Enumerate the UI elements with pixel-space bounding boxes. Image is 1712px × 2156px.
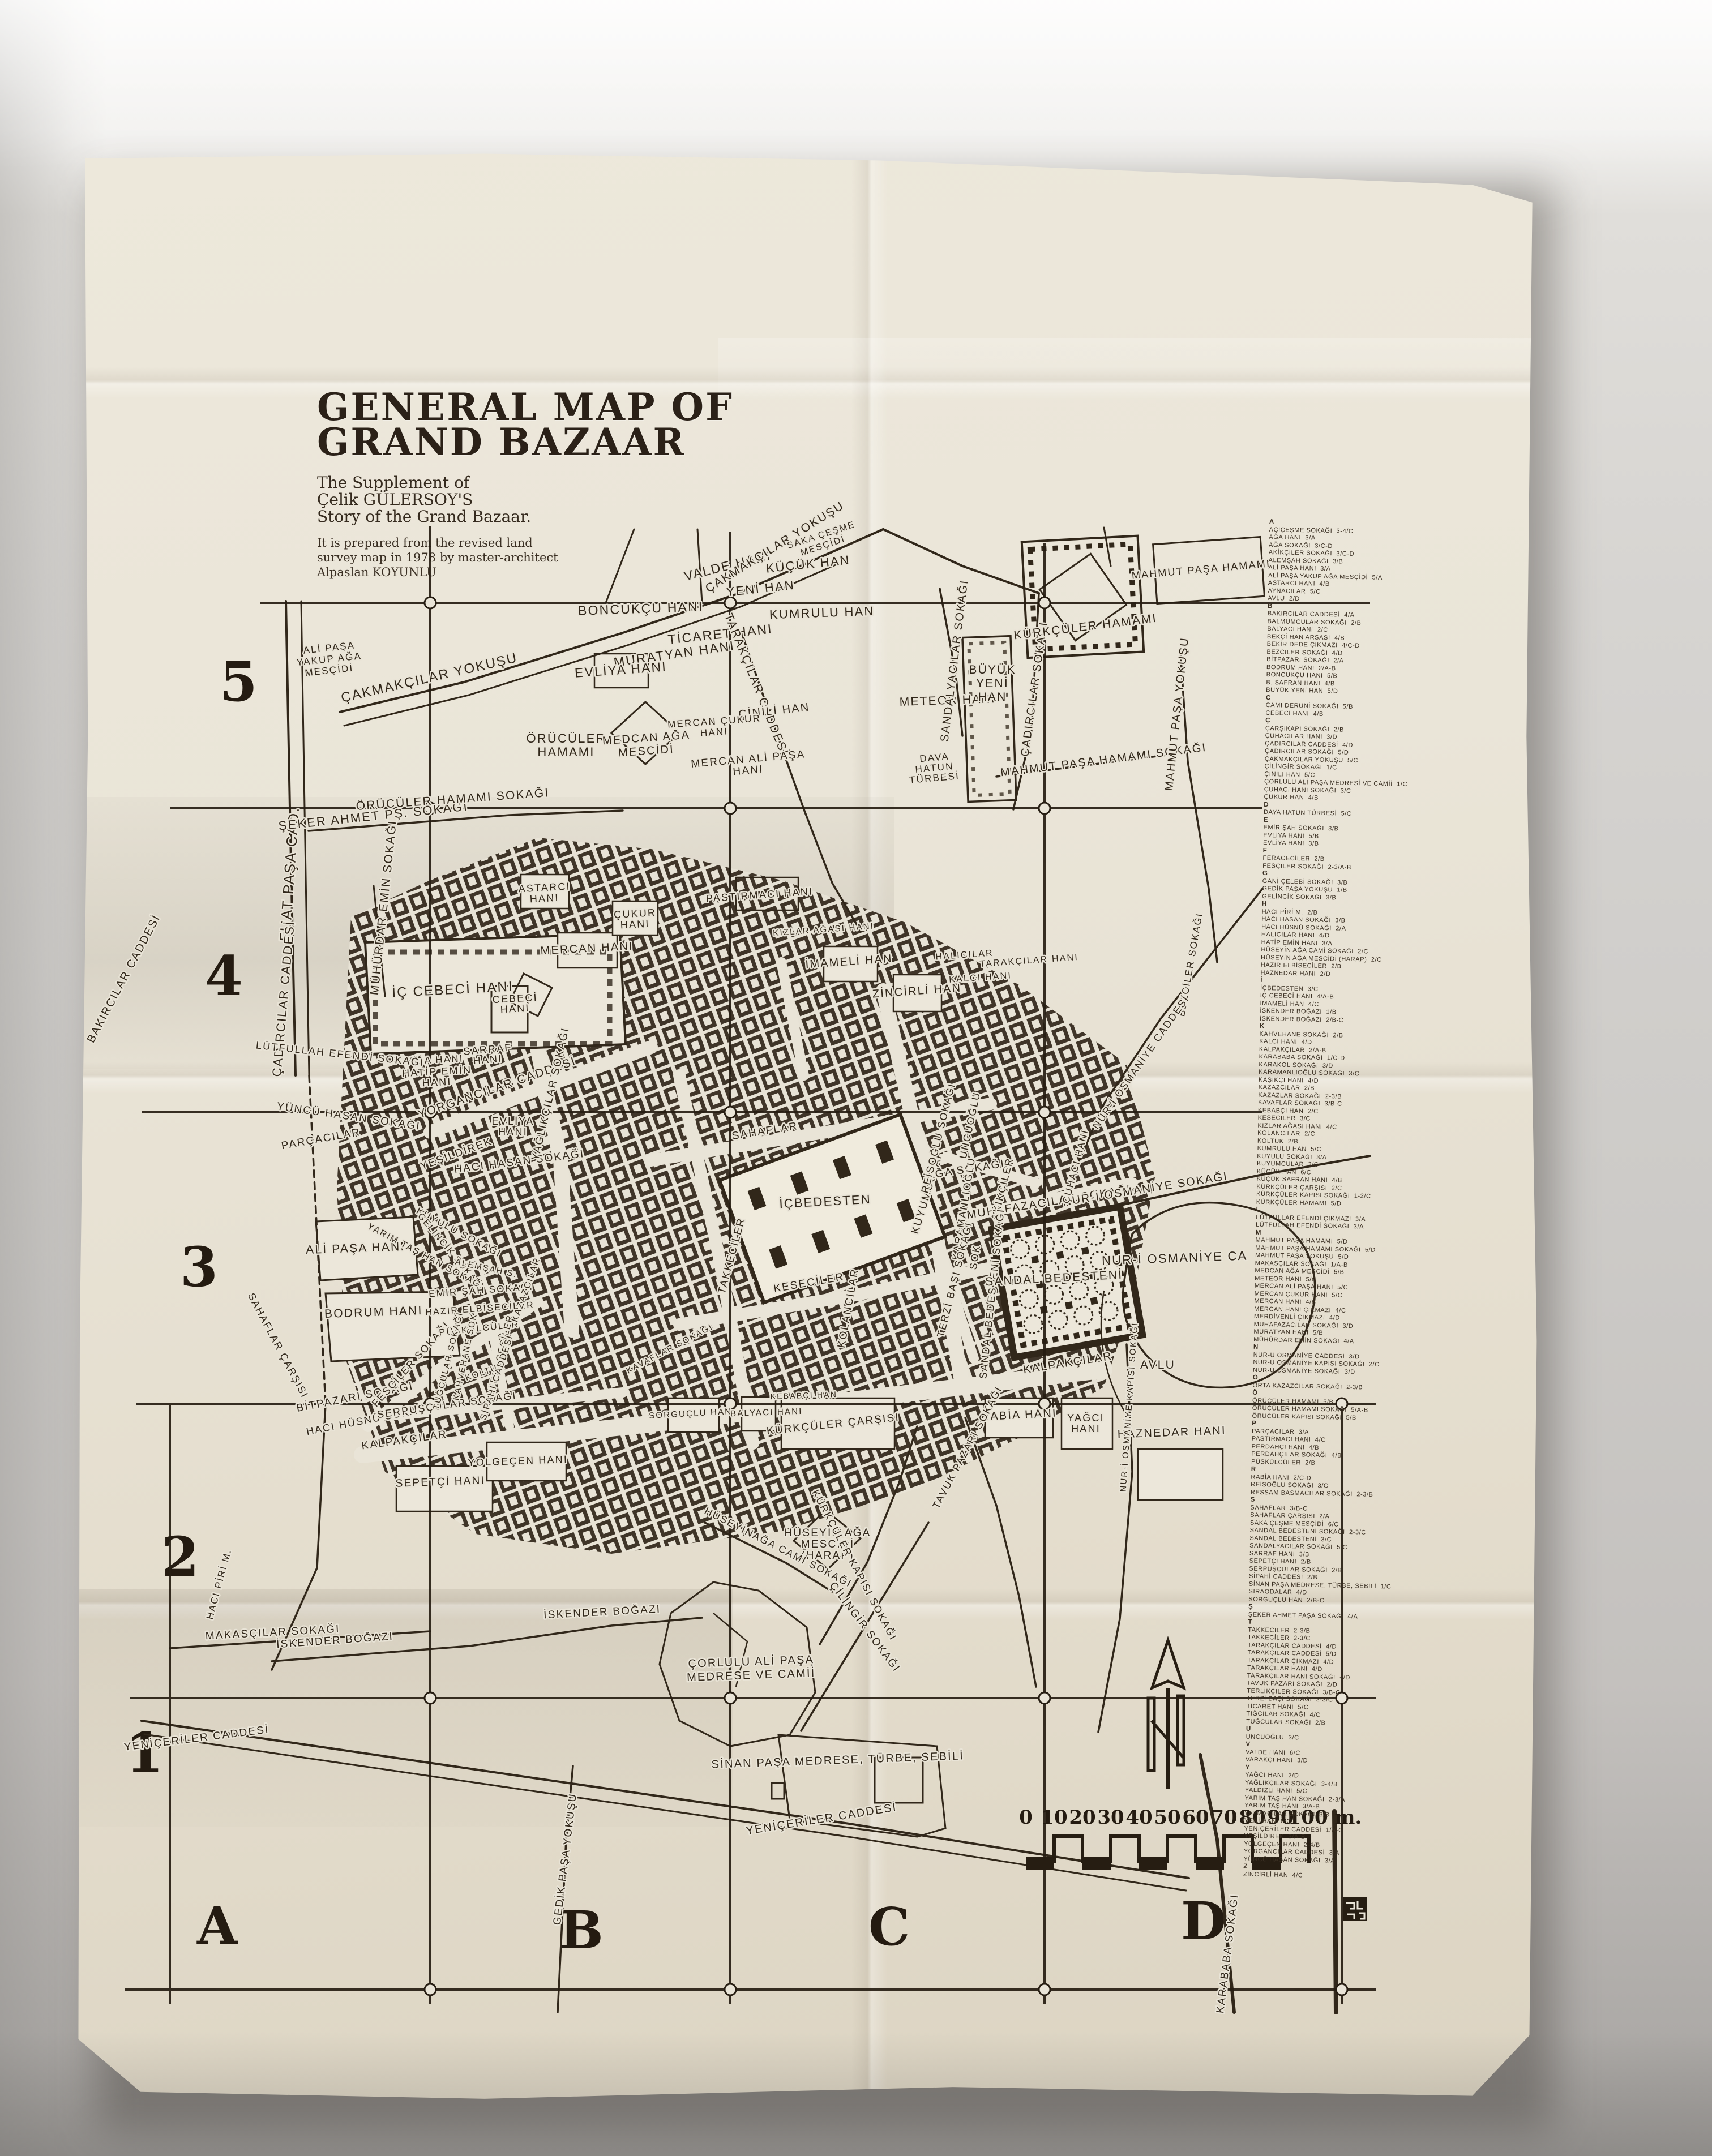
subtitle-line: The Supplement of bbox=[317, 474, 734, 491]
grid-row-label: 2 bbox=[161, 1525, 199, 1589]
map-title-line1: GENERAL MAP OF bbox=[317, 389, 734, 425]
fold-shading bbox=[718, 338, 1538, 406]
title-block: GENERAL MAP OF GRAND BAZAAR The Suppleme… bbox=[317, 389, 734, 580]
fold-shading bbox=[75, 1589, 733, 1827]
note-line: Alpaslan KOYUNLU bbox=[317, 565, 734, 580]
grid-row-label: 4 bbox=[205, 944, 243, 1008]
grid-row-label: 5 bbox=[220, 650, 258, 714]
map-note: It is prepared from the revised land sur… bbox=[317, 535, 734, 580]
background-shading bbox=[0, 2031, 1712, 2156]
fold-crease bbox=[75, 367, 1538, 398]
map-subtitle: The Supplement of Çelik GÜLERSOY'S Story… bbox=[317, 474, 734, 525]
background-wall bbox=[0, 0, 1712, 170]
note-line: survey map in 1978 by master-architect bbox=[317, 550, 734, 565]
grid-row-label: 1 bbox=[126, 1721, 164, 1785]
fold-shading bbox=[75, 797, 894, 1069]
note-line: It is prepared from the revised land bbox=[317, 535, 734, 550]
fold-crease bbox=[851, 152, 888, 2102]
grid-col-label: B bbox=[559, 1900, 605, 1961]
subtitle-line: Story of the Grand Bazaar. bbox=[317, 508, 734, 525]
grid-col-label: A bbox=[197, 1895, 238, 1956]
grid-row-label: 3 bbox=[180, 1235, 218, 1299]
grid-col-label: C bbox=[868, 1896, 911, 1957]
grid-col-label: D bbox=[1181, 1891, 1227, 1952]
photo-of-folded-map: { "title": {"line1": "GENERAL MAP OF", "… bbox=[0, 0, 1712, 2156]
subtitle-line: Çelik GÜLERSOY'S bbox=[317, 491, 734, 508]
street-index-column: AAÇIÇEŞME SOKAĞI 3-4/CAĞA HANI 3/AAĞA SO… bbox=[1243, 518, 1535, 1884]
map-title-line2: GRAND BAZAAR bbox=[317, 425, 734, 460]
